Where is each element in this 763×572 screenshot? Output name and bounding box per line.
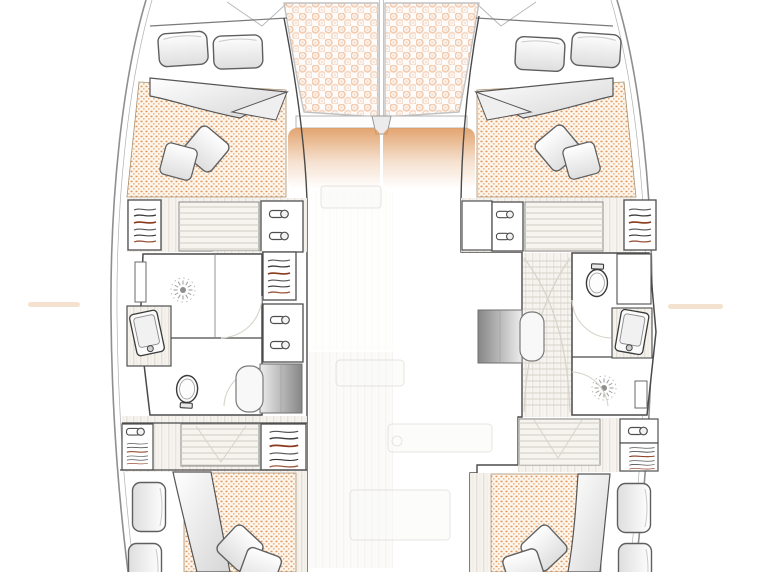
port-aft-cabin xyxy=(120,470,307,572)
cupboard xyxy=(492,202,523,251)
wood-trim xyxy=(470,473,490,572)
wardrobe xyxy=(128,200,161,250)
drawer-pull-icon xyxy=(271,316,290,324)
pillow xyxy=(133,483,166,532)
starboard-forward-cabin xyxy=(476,32,636,197)
port-hull xyxy=(111,0,307,572)
drawer-pull-icon xyxy=(126,428,144,435)
pillow xyxy=(619,544,652,572)
drawer-pull-icon xyxy=(629,427,648,435)
starboard-aft-cabin xyxy=(470,473,652,572)
pillow xyxy=(129,544,162,572)
starboard-bow-deck-seams xyxy=(477,2,536,26)
staircase xyxy=(179,202,259,251)
starboard-bathroom xyxy=(572,253,656,415)
starboard-aft-landing xyxy=(518,418,658,472)
catamaran-floor-plan xyxy=(0,0,763,572)
shower-shelf xyxy=(135,262,146,302)
cabinet xyxy=(462,201,492,250)
drawer-pull-icon xyxy=(270,232,289,240)
pillow xyxy=(570,32,621,68)
cupboard xyxy=(261,201,303,252)
pillow xyxy=(515,36,566,72)
staircase xyxy=(525,202,603,251)
cupboard xyxy=(263,304,303,362)
port-bow-deck-seams xyxy=(227,2,286,26)
floor-plan-canvas xyxy=(0,0,763,572)
shower-shelf xyxy=(635,381,647,408)
drawer-pull-icon xyxy=(271,341,290,349)
pillow xyxy=(618,484,651,533)
hanger-cabinet xyxy=(620,443,658,471)
drawer-pull-icon xyxy=(496,233,513,240)
wardrobe xyxy=(624,200,656,250)
drawer-pull-icon xyxy=(270,210,289,218)
stool xyxy=(520,312,544,361)
wardrobe xyxy=(261,424,306,470)
port-forward-cabin xyxy=(127,31,287,197)
starboard-hull-window-glow xyxy=(668,304,723,309)
staircase xyxy=(519,419,600,465)
port-forward-landing xyxy=(127,198,307,252)
port-aft-landing xyxy=(122,416,307,472)
mast-seam xyxy=(380,0,384,119)
stool xyxy=(236,366,263,412)
starboard-trampoline-net xyxy=(385,3,479,117)
pillow xyxy=(213,35,263,70)
starboard-desk-unit xyxy=(478,310,544,363)
starboard-forward-landing xyxy=(461,198,656,252)
staircase xyxy=(181,424,259,466)
starboard-hull xyxy=(461,0,658,572)
cabinet xyxy=(617,254,651,304)
port-hull-window-glow xyxy=(28,302,80,307)
drawer-pull-icon xyxy=(496,211,513,218)
pillow xyxy=(157,31,208,67)
wood-trim xyxy=(296,472,307,572)
